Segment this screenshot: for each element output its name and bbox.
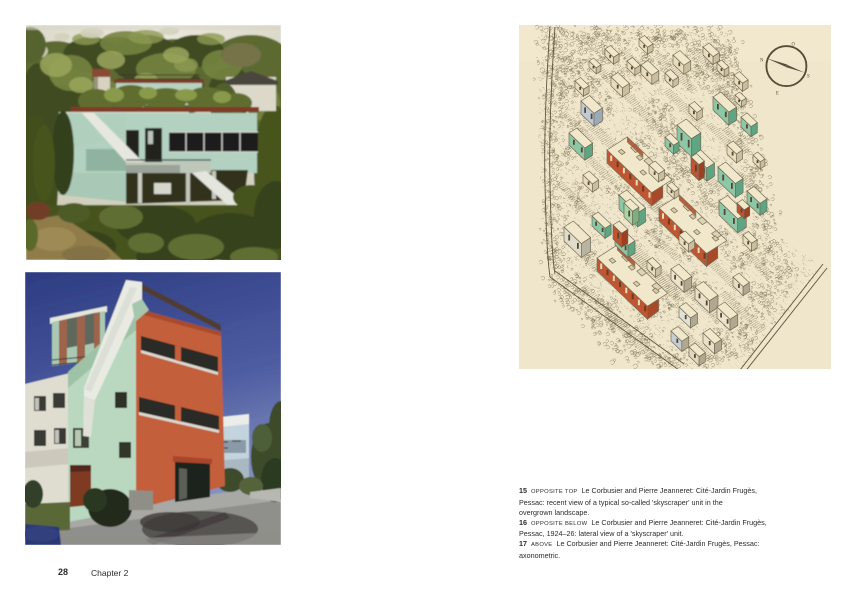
svg-text:N: N bbox=[760, 59, 764, 64]
svg-text:O: O bbox=[792, 43, 796, 48]
svg-text:S: S bbox=[807, 75, 810, 80]
svg-text:E: E bbox=[776, 92, 779, 97]
